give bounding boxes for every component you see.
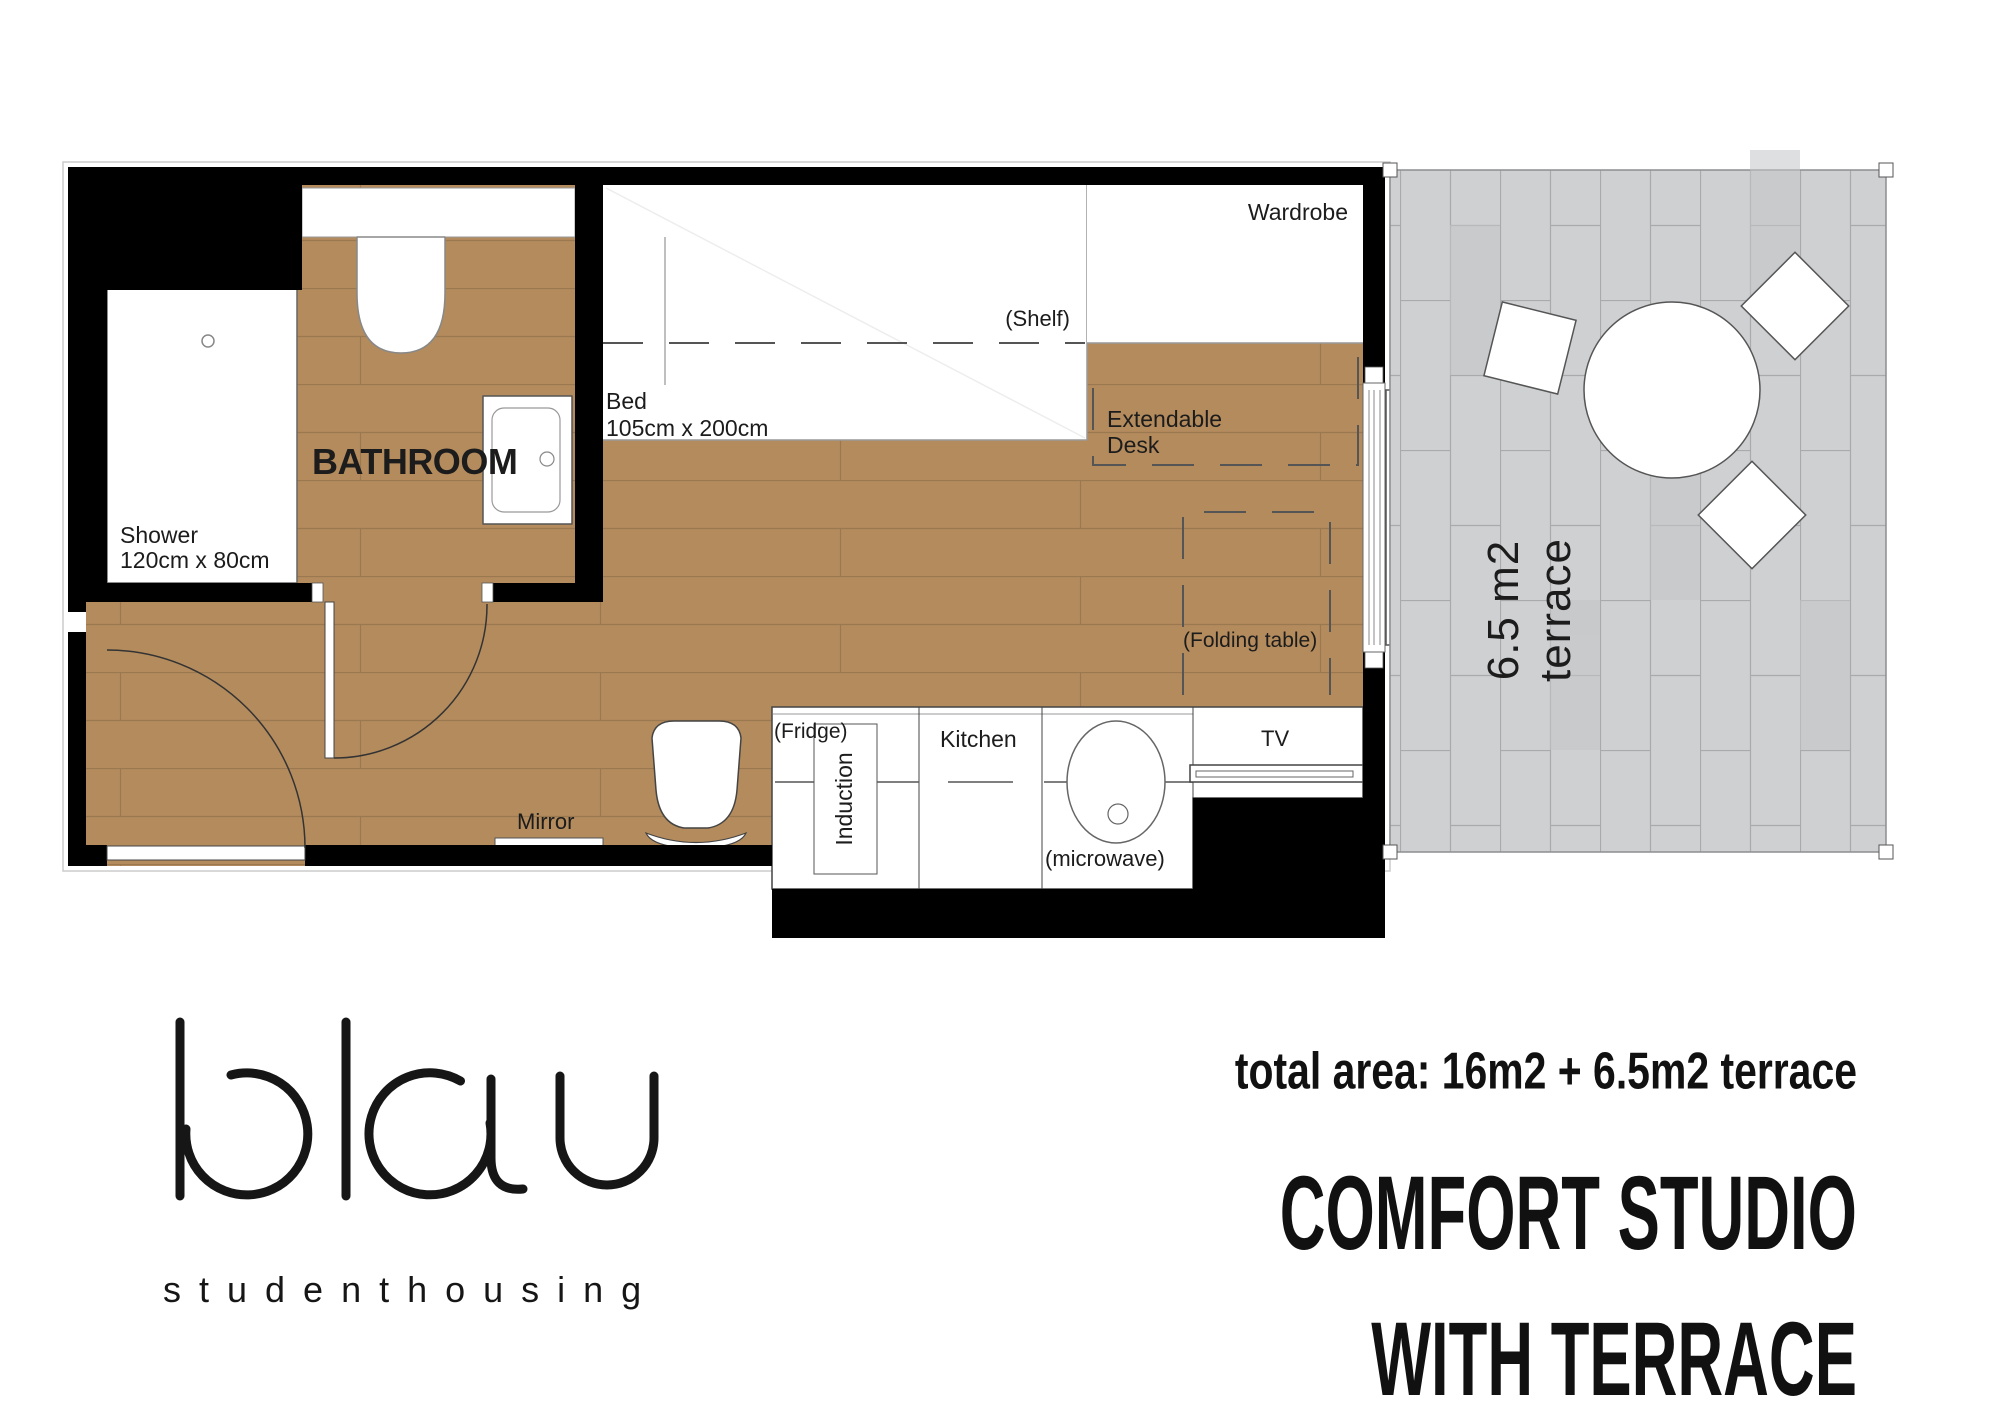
wall-bathroom-bottom-left: [86, 583, 312, 602]
window-jamb-bottom: [1365, 652, 1383, 668]
toilet-bowl: [357, 237, 445, 353]
label-shower-size: 120cm x 80cm: [120, 548, 270, 574]
bathroom-door-leaf: [325, 602, 334, 758]
label-tv: TV: [1261, 727, 1289, 752]
wall-tv-corner: [1193, 798, 1385, 889]
terrace: [1383, 150, 1893, 859]
label-folding-table: (Folding table): [1183, 629, 1317, 653]
plan-title-line2: WITH TERRACE: [1371, 1308, 1857, 1412]
wall-right-lower: [1363, 652, 1385, 938]
plan-title-line1: COMFORT STUDIO: [1280, 1162, 1857, 1266]
floor-plan-page: blau Wardrobe (Shelf) Bed 105cm x 200cm …: [0, 0, 2000, 1414]
label-bed: Bed: [606, 389, 647, 415]
sink: [1067, 721, 1165, 843]
bathroom-door-jamb-left: [312, 583, 323, 602]
sink-drain: [1108, 804, 1128, 824]
label-mirror: Mirror: [517, 810, 574, 835]
label-bathroom: BATHROOM: [312, 442, 517, 482]
label-kitchen: Kitchen: [940, 727, 1017, 753]
terrace-area-line1: 6.5 m2: [1478, 538, 1530, 682]
label-shower: Shower: [120, 523, 198, 549]
wall-bathroom-partition: [575, 167, 603, 602]
blau-logo: [180, 1022, 654, 1196]
wall-bottom-left: [68, 845, 107, 866]
window-jamb-top: [1365, 367, 1383, 383]
wall-right-upper: [1363, 167, 1385, 383]
bathroom-door-jamb-right: [482, 583, 493, 602]
label-induction: Induction: [832, 752, 858, 845]
label-terrace-area: 6.5 m2 terrace: [1478, 538, 1582, 682]
label-microwave: (microwave): [1045, 847, 1165, 872]
logo-a-tail: [491, 1079, 523, 1189]
label-shelf: (Shelf): [930, 307, 1070, 332]
logo-b-bowl: [186, 1073, 308, 1195]
terrace-table: [1584, 302, 1760, 478]
washbasin-drain: [540, 452, 554, 466]
brand-tagline: studenthousing: [163, 1270, 659, 1310]
wall-bottom: [305, 845, 772, 866]
label-wardrobe: Wardrobe: [1180, 200, 1348, 226]
label-fridge: (Fridge): [774, 720, 848, 744]
total-area-text: total area: 16m2 + 6.5m2 terrace: [1235, 1046, 1857, 1098]
logo-u: [560, 1076, 654, 1185]
wall-left-upper: [68, 167, 107, 583]
wall-bottom-kitchen: [772, 889, 1385, 938]
tv-screen: [1190, 765, 1363, 782]
wall-bathroom-bottom-right: [493, 583, 575, 602]
entry-door-leaf: [107, 846, 305, 860]
toilet-cistern: [302, 188, 575, 237]
terrace-area-line2: terrace: [1530, 538, 1582, 682]
shower-drain: [202, 335, 214, 347]
entry-jamb-notch: [68, 612, 86, 632]
logo-a-bowl: [369, 1073, 491, 1195]
label-bed-size: 105cm x 200cm: [606, 416, 768, 442]
label-extendable-desk: Extendable Desk: [1107, 407, 1257, 459]
